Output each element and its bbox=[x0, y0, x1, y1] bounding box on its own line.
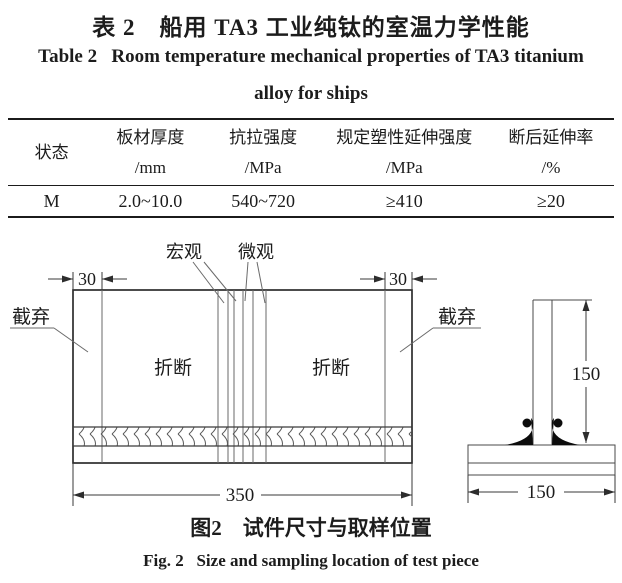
fracture-right-label: 折断 bbox=[312, 357, 350, 379]
header-state: 状态 bbox=[8, 120, 95, 185]
cell-proof-strength: ≥410 bbox=[321, 186, 488, 216]
discard-left-leader bbox=[10, 328, 88, 352]
micro-sample-label: 微观 bbox=[238, 242, 274, 262]
header-thickness-unit: /mm bbox=[135, 158, 166, 178]
discard-left-label: 截弃 bbox=[12, 306, 50, 328]
table-title-en-line1: Table 2 Room temperature mechanical prop… bbox=[0, 46, 622, 68]
macro-sample-label: 宏观 bbox=[166, 242, 202, 262]
table-header-row: 状态 板材厚度 /mm 抗拉强度 /MPa 规定塑性延伸强度 /MPa 断后延伸… bbox=[8, 120, 614, 186]
cell-state: M bbox=[8, 186, 95, 216]
dim-label-30-right: 30 bbox=[389, 269, 407, 289]
weld-fillets bbox=[505, 418, 580, 445]
table-title-en-line2: alloy for ships bbox=[0, 83, 622, 105]
weld-seam-band bbox=[73, 427, 412, 446]
figure-caption-zh: 图2 试件尺寸与取样位置 bbox=[0, 512, 622, 542]
test-piece-diagram: 30 30 宏观 微观 截弃 截弃 折断 折断 350 bbox=[0, 225, 622, 510]
fracture-left-label: 折断 bbox=[154, 357, 192, 379]
header-elongation-name: 断后延伸率 bbox=[508, 128, 593, 148]
header-proof-strength: 规定塑性延伸强度 /MPa bbox=[321, 120, 488, 185]
header-thickness: 板材厚度 /mm bbox=[95, 120, 205, 185]
dim-label-150-vertical: 150 bbox=[572, 364, 601, 385]
dim-label-30-left: 30 bbox=[78, 269, 96, 289]
header-tensile-name: 抗拉强度 bbox=[229, 128, 297, 148]
cell-elongation: ≥20 bbox=[488, 186, 614, 216]
header-proof-strength-name: 规定塑性延伸强度 bbox=[336, 128, 472, 148]
header-state-name: 状态 bbox=[35, 143, 69, 163]
micro-leader-lines bbox=[245, 262, 265, 303]
cell-thickness: 2.0~10.0 bbox=[95, 186, 205, 216]
header-tensile-unit: /MPa bbox=[245, 158, 282, 178]
tjoint-base-plate bbox=[468, 445, 615, 475]
macro-leader-lines bbox=[193, 262, 236, 303]
header-thickness-name: 板材厚度 bbox=[116, 128, 184, 148]
properties-table: 状态 板材厚度 /mm 抗拉强度 /MPa 规定塑性延伸强度 /MPa 断后延伸… bbox=[8, 118, 614, 218]
page: { "table": { "title_zh": "表 2 船用 TA3 工业纯… bbox=[0, 0, 622, 583]
table-title-zh: 表 2 船用 TA3 工业纯钛的室温力学性能 bbox=[0, 8, 622, 42]
dim-label-150-horizontal: 150 bbox=[527, 482, 556, 503]
discard-right-label: 截弃 bbox=[438, 306, 476, 328]
table-data-row: M 2.0~10.0 540~720 ≥410 ≥20 bbox=[8, 186, 614, 216]
header-tensile: 抗拉强度 /MPa bbox=[206, 120, 321, 185]
header-proof-strength-unit: /MPa bbox=[386, 158, 423, 178]
cell-tensile: 540~720 bbox=[206, 186, 321, 216]
dim-label-350: 350 bbox=[226, 485, 255, 506]
header-elongation-unit: /% bbox=[541, 158, 560, 178]
figure-caption-en: Fig. 2 Size and sampling location of tes… bbox=[0, 551, 622, 571]
header-elongation: 断后延伸率 /% bbox=[488, 120, 614, 185]
